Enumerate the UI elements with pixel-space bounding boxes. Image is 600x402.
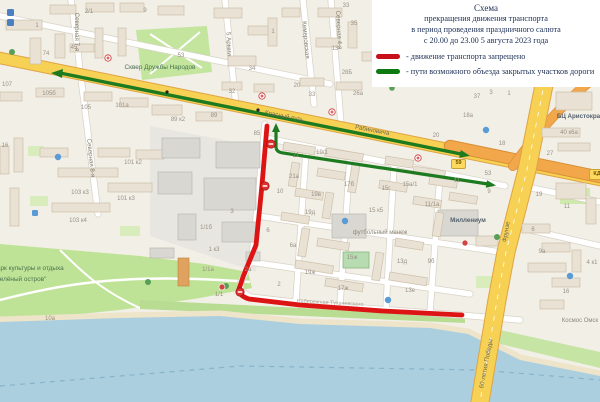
pharmacy-icon (415, 155, 421, 161)
building-label: 2/1 (85, 9, 93, 15)
building-label: 85 (254, 131, 261, 137)
building-label: 20 (433, 133, 440, 139)
building-label: 13е (405, 288, 415, 294)
building-label: 17ж (338, 286, 349, 292)
place-label: футбольный манеж (353, 230, 408, 236)
legend-title-line: прекращения движения транспорта (372, 13, 600, 24)
building-label: 21 (293, 153, 300, 159)
legend-item-label: - движение транспорта запрещено (406, 52, 525, 61)
building-label: 9 (143, 8, 146, 14)
building-label: 33 (343, 3, 350, 9)
building-label: 18 (499, 141, 506, 147)
building-label: 13д (397, 259, 407, 265)
building-label: 105 (81, 105, 91, 111)
river-water (0, 316, 600, 402)
building-label: 11/1а (425, 202, 440, 208)
pharmacy-icon (329, 109, 335, 115)
legend-panel: Схема прекращения движения транспорта в … (372, 0, 600, 87)
building-label: 103 к4 (69, 218, 87, 224)
cafe-icon (219, 284, 225, 290)
building-label: 19д (305, 210, 315, 216)
place-badge: КД (589, 169, 600, 180)
no-entry-icon (236, 288, 244, 296)
building-label: 3 (489, 90, 492, 96)
shop-icon (567, 273, 573, 279)
building-label: 89 (211, 113, 218, 119)
building-label: 32 (229, 89, 236, 95)
building-label: 1 (507, 91, 510, 97)
building-label: 3 (230, 209, 233, 215)
building-label: 101а (115, 103, 128, 109)
building-label: 1/1 (215, 292, 223, 298)
parking-icon (32, 210, 38, 216)
building-label: 10а (45, 316, 55, 322)
legend-title: Схема (372, 3, 600, 13)
fountain-icon (483, 127, 489, 133)
place-label: Сквер Дружбы Народов (125, 65, 196, 71)
place-label: "Зелёный остров" (0, 277, 46, 283)
building-label: 17б (344, 182, 354, 188)
building-label: 40 к6а (560, 130, 578, 136)
legend-item-detour: - пути возможного объезда закрытых участ… (376, 67, 600, 76)
building-label: 26а (353, 91, 363, 97)
building-label: 2 (277, 282, 280, 288)
building-label: 1 к3 (209, 247, 220, 253)
building-label: 1/1б (200, 225, 212, 231)
building-label: 101 к3 (117, 196, 135, 202)
building-label: 1 (271, 29, 274, 35)
building-label: 2а (245, 267, 252, 273)
legend-item-closed: - движение транспорта запрещено (376, 52, 600, 61)
building-label: 53 (485, 171, 492, 177)
building-label: 35 (351, 21, 358, 27)
place-label: БЦ Аристократ (557, 114, 600, 120)
building-label: 34 (249, 66, 256, 72)
shop-icon (7, 9, 14, 16)
shop-icon (7, 19, 14, 26)
building-label: 15ж (347, 255, 358, 261)
tree-icon (145, 279, 151, 285)
building-label: 19/1 (316, 150, 328, 156)
building-label: 37 (474, 94, 481, 100)
building-label: 9а (539, 249, 546, 255)
traffic-dot (165, 90, 168, 93)
building-label: 74 (43, 51, 50, 57)
building-label: 6а (290, 243, 297, 249)
legend-item-label: - пути возможного объезда закрытых участ… (406, 67, 594, 76)
building-label: 9б (428, 259, 435, 265)
building-label: 16 (2, 143, 9, 149)
building-label: 15а/1 (402, 182, 417, 188)
building-label: 1 (35, 23, 38, 29)
pharmacy-icon (105, 55, 111, 61)
building-label: 10 (277, 189, 284, 195)
building-label: 21а (289, 174, 299, 180)
no-entry-icon (267, 140, 275, 148)
building-label: 89 к2 (171, 117, 185, 123)
tree-icon (9, 49, 15, 55)
cafe-icon (462, 240, 468, 246)
building-label: 33 (309, 92, 316, 98)
place-label: Парк культуры и отдыха (0, 266, 64, 272)
building-label: 19в (311, 192, 321, 198)
place-label: Миллениум (450, 218, 486, 224)
building-label: 18а (463, 113, 473, 119)
building-label: 15 к5 (369, 208, 383, 214)
pharmacy-icon (259, 93, 265, 99)
detour-route-swatch (376, 69, 400, 74)
building-label: 27 (547, 151, 554, 157)
map-scheme: 2/1 1 74 45 9 53 107 105б 105 101а 89 к2… (0, 0, 600, 402)
legend-title-line: в период проведения праздничного салюта (372, 24, 600, 35)
building-label: 19 (536, 192, 543, 198)
shop-icon (55, 154, 61, 160)
sport-icon (342, 218, 348, 224)
building-label: 107 (2, 82, 12, 88)
building-label: 20 (294, 83, 301, 89)
shop-icon (385, 297, 391, 303)
building-label: 6 (531, 227, 534, 233)
street-label: Северная 4-я (334, 10, 342, 49)
route-number-badge: 59 (451, 159, 466, 169)
building-label: 53 (178, 53, 185, 59)
building-label: 103 к3 (71, 190, 89, 196)
place-label: Космос Омск (562, 318, 598, 324)
building-label: 1/1а (202, 267, 214, 273)
building-label: 105б (42, 91, 55, 97)
building-label: 16 (563, 289, 570, 295)
building-label: 28Б (342, 70, 353, 76)
building-label: 6 (266, 228, 269, 234)
building-label: 4 к1 (587, 260, 598, 266)
street-label: Северная 7-я (73, 13, 79, 52)
traffic-dot (256, 108, 259, 111)
building-label: 9 (487, 189, 490, 195)
tree-icon (494, 234, 500, 240)
legend-title-line: с 20.00 до 23.00 5 августа 2023 года (372, 35, 600, 46)
no-entry-icon (261, 182, 269, 190)
street-label: 5 Армии (224, 32, 231, 56)
building-label: 11 (564, 204, 570, 210)
closed-route-swatch (376, 54, 400, 59)
building-label: 11 (454, 178, 460, 184)
building-label: 19ж (305, 270, 316, 276)
building-label: 15г (382, 186, 391, 192)
building-label: 101 к2 (124, 160, 142, 166)
